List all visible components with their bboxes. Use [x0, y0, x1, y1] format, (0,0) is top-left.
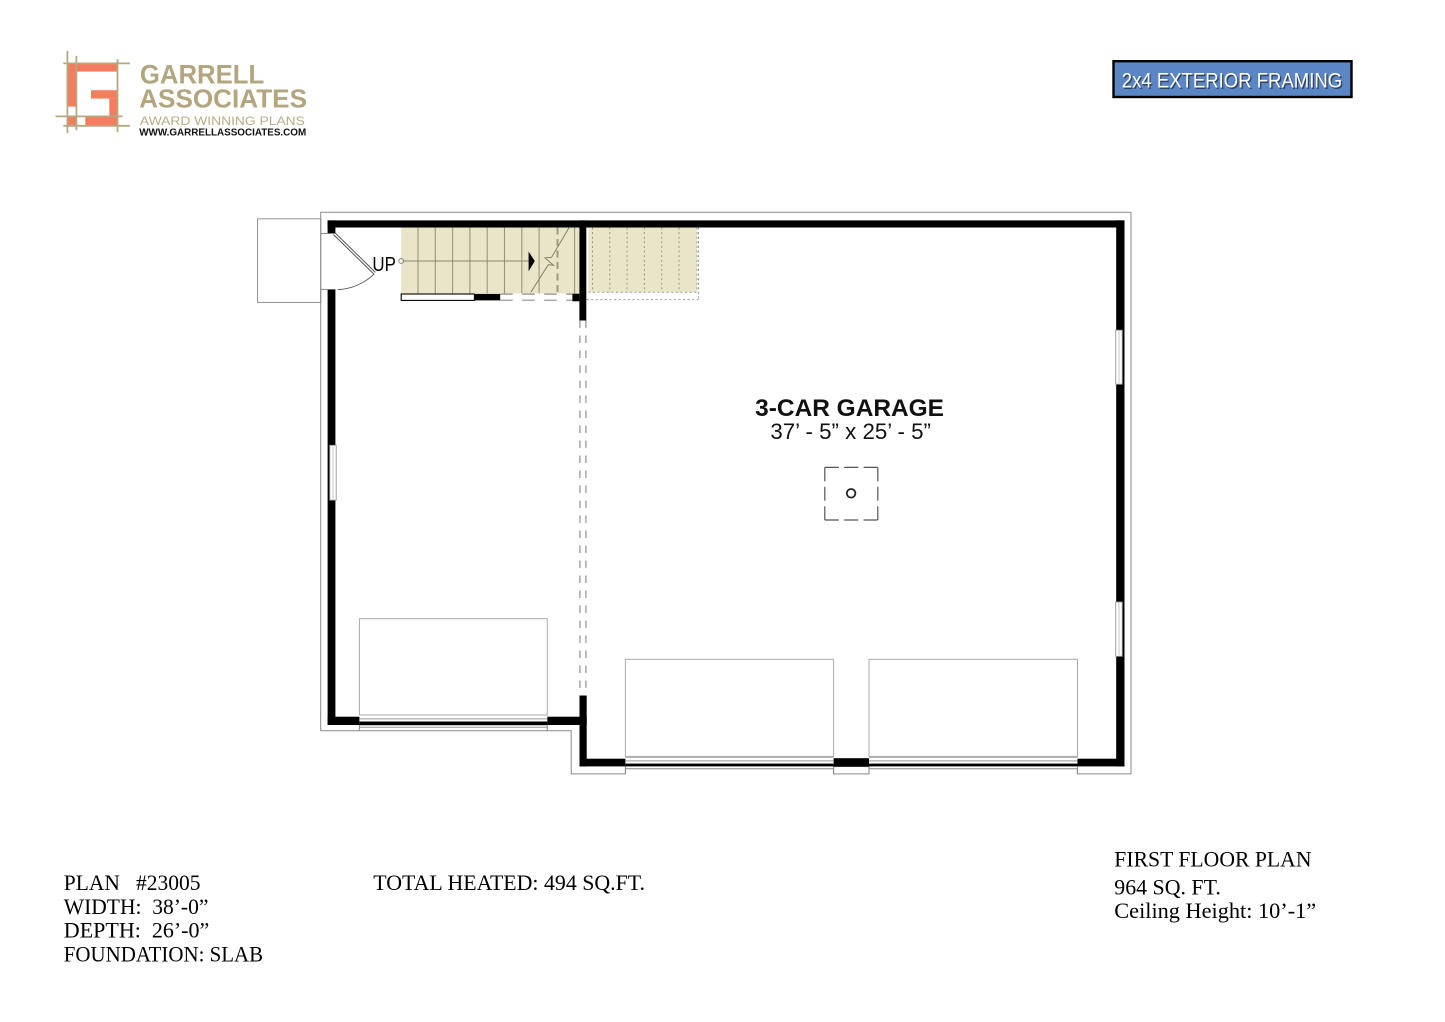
svg-text:2x4 EXTERIOR FRAMING: 2x4 EXTERIOR FRAMING: [1122, 70, 1342, 93]
svg-text:PLAN #23005: PLAN #23005: [64, 870, 201, 895]
svg-text:37’ - 5” x 25’ - 5”: 37’ - 5” x 25’ - 5”: [770, 419, 931, 444]
svg-text:WIDTH: 38’-0”: WIDTH: 38’-0”: [64, 894, 209, 919]
svg-text:DEPTH: 26’-0”: DEPTH: 26’-0”: [64, 918, 210, 943]
svg-text:Ceiling Height: 10’-1”: Ceiling Height: 10’-1”: [1114, 898, 1316, 923]
svg-text:3-CAR GARAGE: 3-CAR GARAGE: [755, 395, 944, 422]
svg-text:WWW.GARRELLASSOCIATES.COM: WWW.GARRELLASSOCIATES.COM: [139, 127, 306, 138]
svg-text:964 SQ. FT.: 964 SQ. FT.: [1114, 875, 1221, 900]
svg-text:FOUNDATION: SLAB: FOUNDATION: SLAB: [64, 941, 263, 966]
svg-text:UP: UP: [372, 254, 396, 276]
svg-text:FIRST FLOOR PLAN: FIRST FLOOR PLAN: [1114, 846, 1311, 871]
svg-text:TOTAL HEATED: 494 SQ.FT.: TOTAL HEATED: 494 SQ.FT.: [373, 870, 645, 895]
svg-text:ASSOCIATES: ASSOCIATES: [139, 86, 307, 114]
svg-text:AWARD WINNING PLANS: AWARD WINNING PLANS: [140, 114, 305, 128]
